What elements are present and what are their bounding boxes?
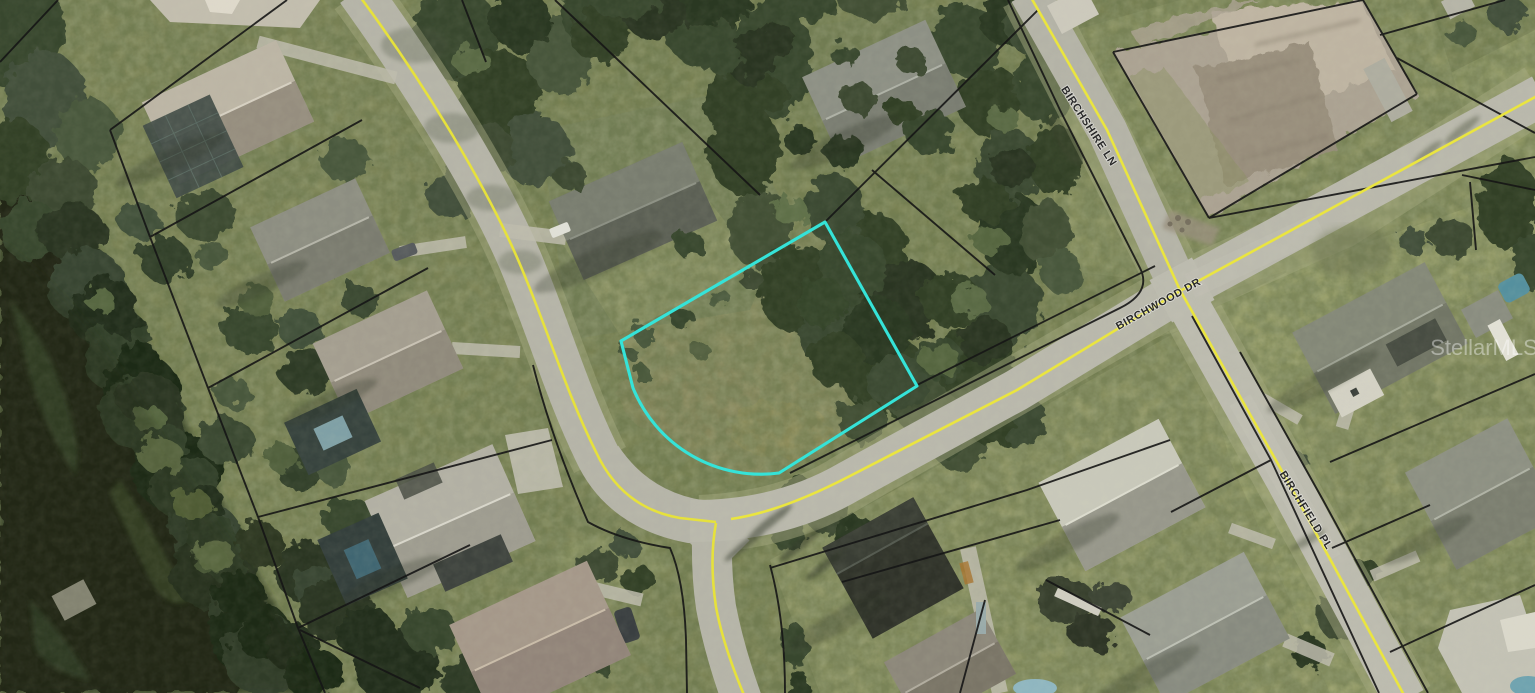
svg-text:StellarMLS: StellarMLS [1430, 335, 1535, 360]
